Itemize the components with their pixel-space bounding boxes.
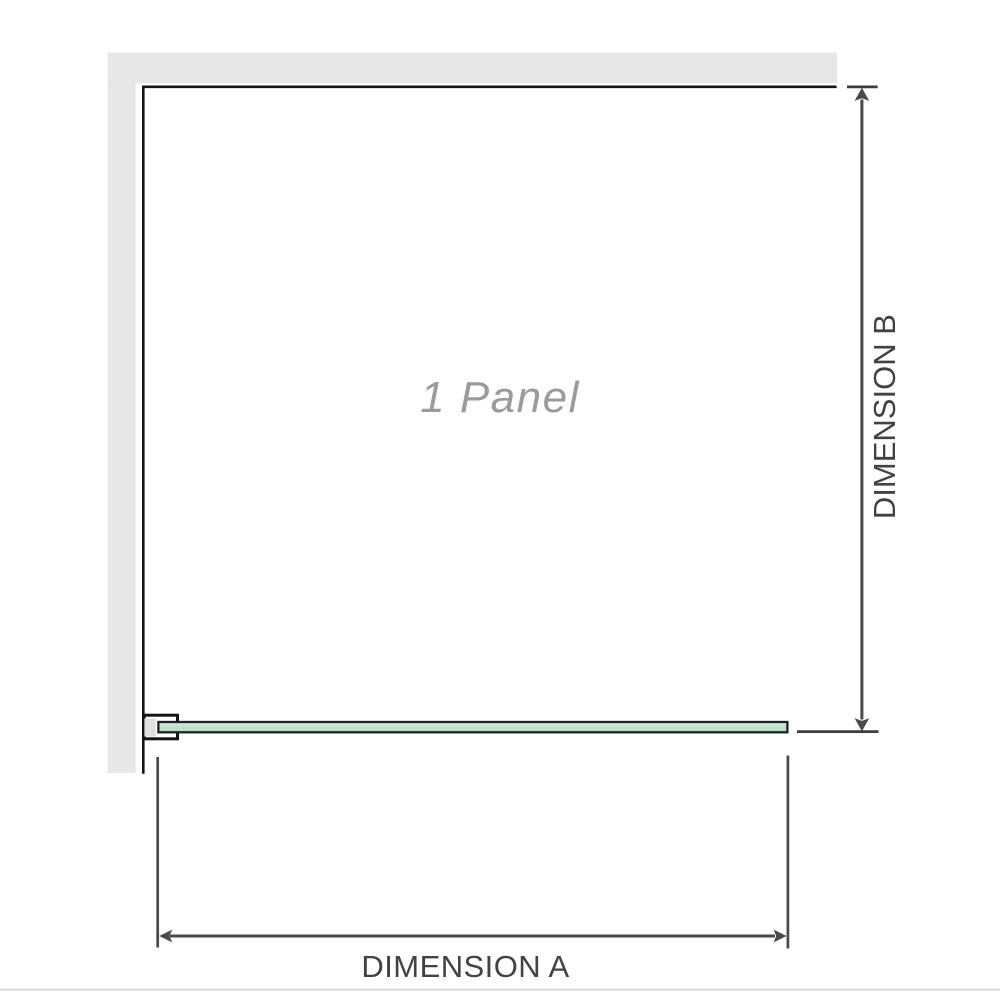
svg-text:1 Panel: 1 Panel: [420, 373, 580, 422]
svg-text:DIMENSION B: DIMENSION B: [867, 314, 902, 519]
svg-text:DIMENSION A: DIMENSION A: [361, 949, 569, 984]
